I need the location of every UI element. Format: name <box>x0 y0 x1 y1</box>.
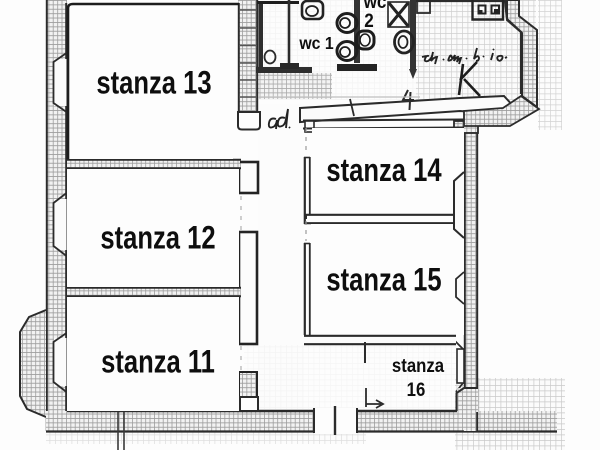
svg-text:stanza 11: stanza 11 <box>101 345 215 380</box>
svg-text:16: 16 <box>407 379 426 400</box>
svg-text:2: 2 <box>364 10 374 31</box>
svg-text:stanza: stanza <box>392 355 445 376</box>
svg-text:stanza 13: stanza 13 <box>96 66 211 101</box>
svg-text:wc 1: wc 1 <box>298 33 333 53</box>
svg-text:stanza 15: stanza 15 <box>326 263 441 298</box>
svg-text:stanza 14: stanza 14 <box>326 153 441 188</box>
svg-text:stanza 12: stanza 12 <box>100 221 215 256</box>
